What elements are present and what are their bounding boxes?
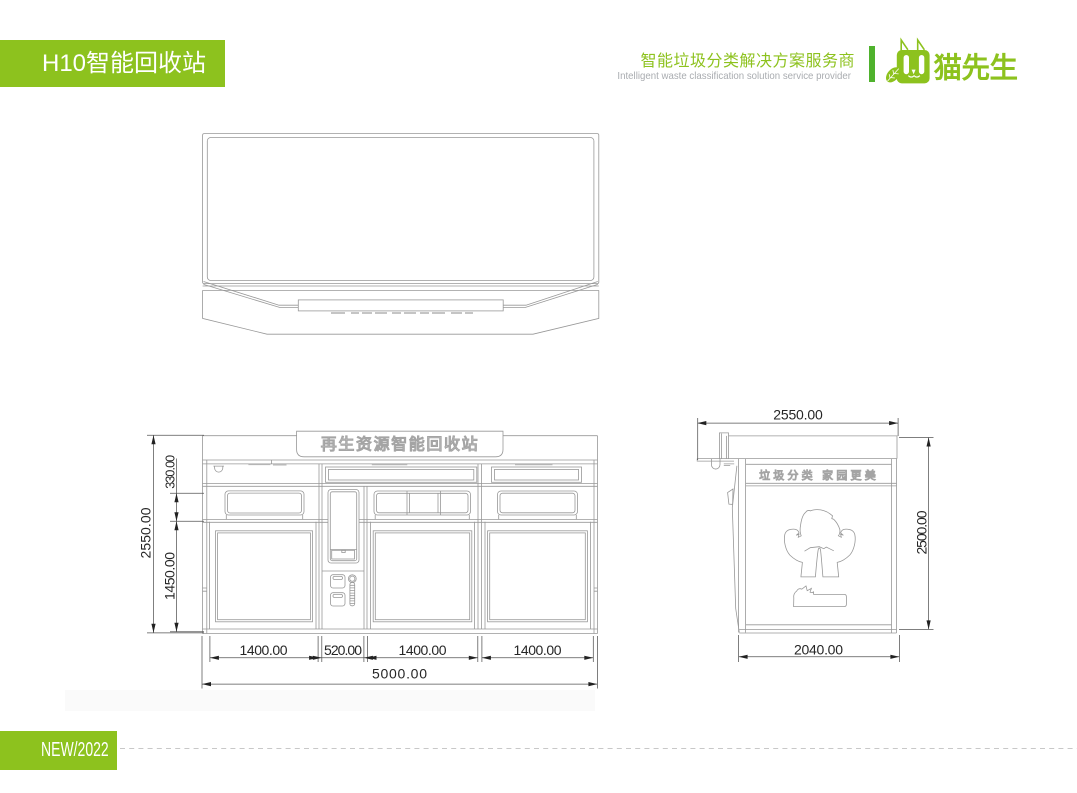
svg-text:1450.00: 1450.00: [162, 552, 178, 600]
svg-text:2500.00: 2500.00: [914, 510, 930, 554]
svg-text:1400.00: 1400.00: [514, 642, 562, 658]
svg-text:2550.00: 2550.00: [138, 507, 154, 558]
svg-text:520.00: 520.00: [324, 642, 362, 658]
svg-text:330.00: 330.00: [164, 455, 178, 489]
svg-text:1400.00: 1400.00: [240, 642, 288, 658]
svg-text:2040.00: 2040.00: [794, 642, 843, 658]
svg-text:垃圾分类 家园更美: 垃圾分类 家园更美: [759, 468, 879, 482]
svg-text:2550.00: 2550.00: [773, 407, 823, 423]
svg-text:再生资源智能回收站: 再生资源智能回收站: [321, 435, 479, 454]
svg-text:5000.00: 5000.00: [372, 665, 427, 681]
svg-text:1400.00: 1400.00: [399, 642, 447, 658]
